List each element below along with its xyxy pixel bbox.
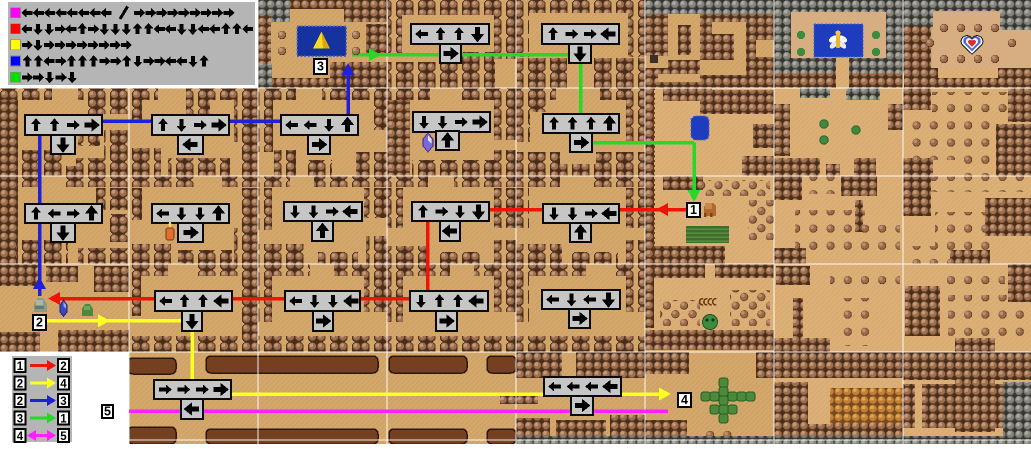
svg-text:4: 4 [17,431,24,443]
svg-text:2: 2 [17,378,23,390]
svg-text:3: 3 [17,413,23,425]
svg-text:2: 2 [17,396,23,408]
svg-text:4: 4 [60,378,67,390]
svg-text:3: 3 [317,60,324,74]
svg-text:5: 5 [60,431,67,443]
svg-text:5: 5 [104,405,111,419]
svg-text:3: 3 [60,396,66,408]
svg-text:2: 2 [60,361,66,373]
svg-text:1: 1 [60,413,67,425]
svg-text:2: 2 [36,316,43,330]
svg-text:1: 1 [690,203,697,217]
svg-text:1: 1 [17,361,24,373]
svg-text:4: 4 [681,393,688,407]
